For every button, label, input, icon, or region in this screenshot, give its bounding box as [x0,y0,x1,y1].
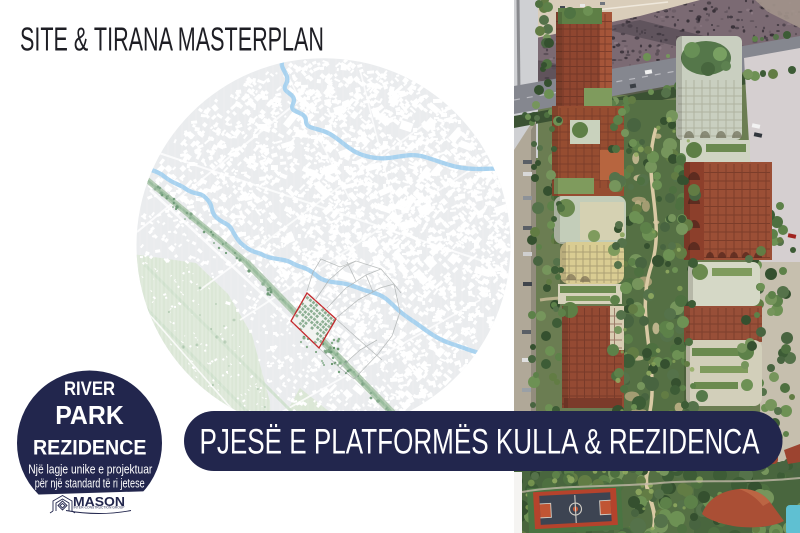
svg-text:Një lagje unike e projektuar: Një lagje unike e projektuar [28,461,153,476]
svg-text:për një standard të ri jetese: për një standard të ri jetese [35,476,145,491]
svg-text:RIVER: RIVER [64,379,115,400]
svg-text:PARK: PARK [55,400,124,430]
svg-text:PJESË E PLATFORMËS KULLA & REZ: PJESË E PLATFORMËS KULLA & REZIDENCA [200,423,760,462]
svg-text:INTER-CONSTRUCTION GROUP: INTER-CONSTRUCTION GROUP [74,506,126,510]
svg-text:SITE & TIRANA MASTERPLAN: SITE & TIRANA MASTERPLAN [20,21,324,58]
svg-text:REZIDENCE: REZIDENCE [33,436,147,459]
